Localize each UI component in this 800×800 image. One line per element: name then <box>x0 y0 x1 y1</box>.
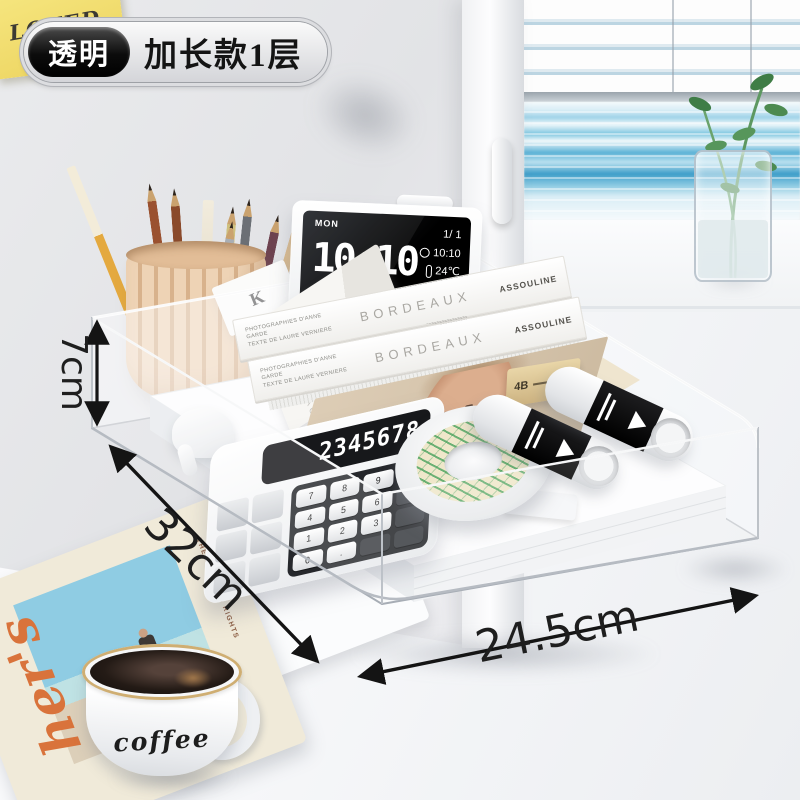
model-label: 加长款1层 <box>144 28 303 76</box>
window-handle <box>492 138 512 224</box>
alarm-icon <box>420 248 430 258</box>
calculator-key <box>215 529 248 564</box>
calculator-key: 4 <box>295 505 326 529</box>
triangle-logo-icon <box>555 439 578 464</box>
calculator-key <box>216 497 249 532</box>
calculator-function-keys <box>213 489 284 596</box>
product-photo-stage: K her's THE CROATIAN RIGHTS <box>0 0 800 800</box>
calculator-key: 9 <box>363 469 394 493</box>
triangle-logo-icon <box>627 411 650 436</box>
calculator-key: . <box>326 540 357 564</box>
calculator-key: 6 <box>362 490 393 514</box>
clock-weekday: MON <box>315 218 339 229</box>
calculator-key: 0 <box>292 548 323 572</box>
tray-shadow-right <box>660 548 800 590</box>
variant-badge-dark-pill: 透明 <box>28 27 130 77</box>
k-mark: K <box>247 286 268 311</box>
cup-label: coffee <box>85 722 238 759</box>
calculator-key <box>252 489 285 524</box>
variant-badge: 透明 加长款1层 <box>24 22 327 82</box>
vase-water <box>698 220 768 278</box>
calculator-key: 1 <box>293 527 324 551</box>
cup-rim <box>82 644 242 700</box>
calculator-key: 3 <box>361 511 392 535</box>
coffee-cup: coffee <box>78 638 266 800</box>
calculator-key: 2 <box>327 519 358 543</box>
calculator-key: 5 <box>328 498 359 522</box>
calculator-key: 8 <box>329 476 360 500</box>
book-publisher: ASSOULINE <box>499 273 558 294</box>
coffee-surface <box>90 650 234 694</box>
eraser-label: 4B <box>514 379 529 393</box>
calculator-key <box>360 532 391 556</box>
thermometer-icon <box>426 265 433 278</box>
variant-label: 透明 <box>48 31 110 73</box>
calculator-key <box>250 521 283 556</box>
book-publisher: ASSOULINE <box>514 314 573 335</box>
clock-alarm-time: 10:10 <box>433 244 461 264</box>
calculator-key: 7 <box>296 484 327 508</box>
clock-date: 1/ 1 <box>413 224 462 245</box>
glass-vase <box>694 150 772 282</box>
